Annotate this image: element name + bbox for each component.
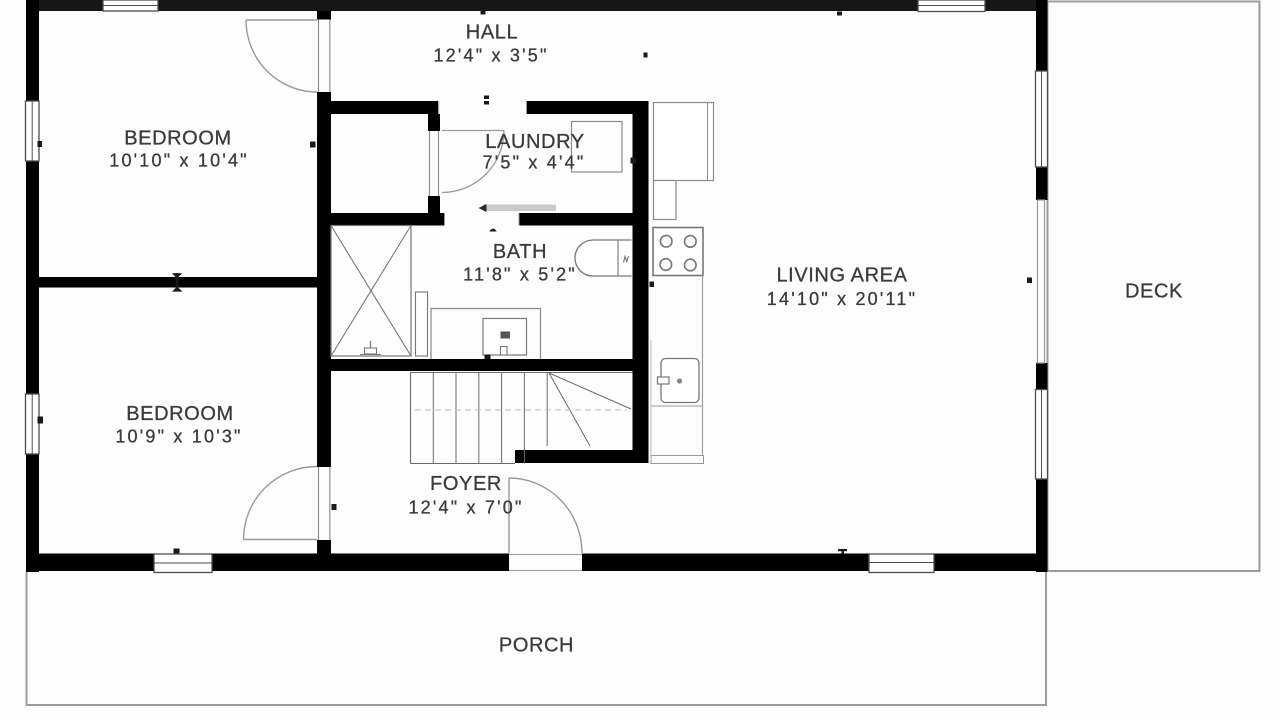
svg-text:DECK: DECK [1125, 281, 1183, 303]
svg-text:PORCH: PORCH [499, 635, 574, 657]
svg-text:12'4" x 3'5": 12'4" x 3'5" [433, 46, 548, 66]
svg-text:10'9" x 10'3": 10'9" x 10'3" [115, 427, 242, 447]
svg-text:12'4" x 7'0": 12'4" x 7'0" [408, 497, 523, 517]
svg-text:14'10" x 20'11": 14'10" x 20'11" [767, 289, 917, 309]
svg-text:BEDROOM: BEDROOM [124, 128, 232, 150]
svg-text:FOYER: FOYER [430, 473, 502, 495]
svg-text:10'10" x 10'4": 10'10" x 10'4" [109, 150, 249, 170]
svg-text:11'8" x 5'2": 11'8" x 5'2" [463, 265, 577, 285]
svg-text:LIVING AREA: LIVING AREA [776, 264, 907, 286]
svg-text:BEDROOM: BEDROOM [126, 403, 234, 425]
svg-text:BATH: BATH [493, 241, 547, 263]
svg-text:HALL: HALL [466, 21, 518, 43]
svg-text:7'5" x 4'4": 7'5" x 4'4" [483, 153, 586, 173]
svg-text:LAUNDRY: LAUNDRY [485, 131, 584, 153]
